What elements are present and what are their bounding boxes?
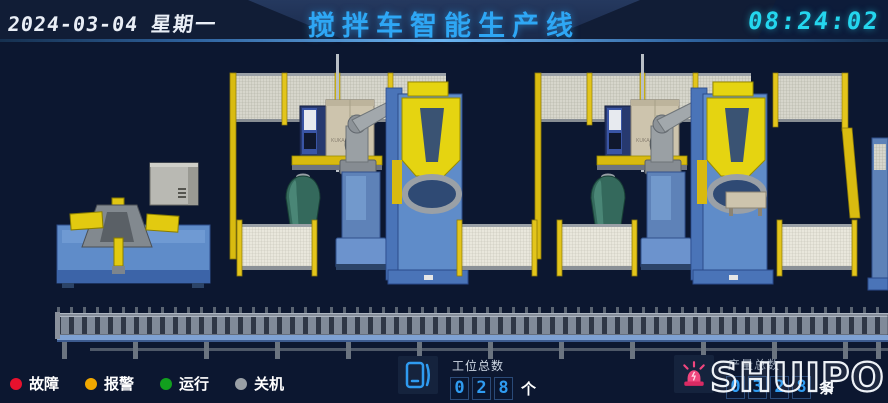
- roller-conveyor: [55, 307, 888, 359]
- safety-fence-front-4: [777, 220, 857, 276]
- clock-display: 08:24:02: [747, 7, 882, 35]
- alarm-siren-icon: [680, 360, 708, 388]
- station-counter: 工位总数 0 2 8 个: [398, 356, 536, 400]
- status-legend: 故障 报警 运行 关机: [10, 373, 284, 394]
- tablet-device-icon: [404, 360, 432, 390]
- safety-fence-front-2: [457, 220, 537, 276]
- production-line-dashboard: 2024-03-04 星期一 搅拌车智能生产线 08:24:02: [0, 0, 888, 403]
- left-fixture-station: [57, 198, 210, 288]
- safety-fence-front-3: [557, 220, 637, 276]
- legend-fault-label: 故障: [29, 373, 59, 394]
- off-status-dot: [235, 378, 247, 390]
- legend-off: 关机: [235, 373, 284, 394]
- legend-off-label: 关机: [254, 373, 284, 394]
- header-bar: 2024-03-04 星期一 搅拌车智能生产线 08:24:02: [0, 0, 888, 42]
- fault-status-dot: [10, 378, 22, 390]
- legend-alarm-label: 报警: [104, 373, 134, 394]
- legend-running-label: 运行: [179, 373, 209, 394]
- siren-icon-panel: [674, 355, 714, 393]
- alarm-status-dot: [85, 378, 97, 390]
- legend-running: 运行: [160, 373, 209, 394]
- station-counter-label: 工位总数: [452, 357, 536, 374]
- running-status-dot: [160, 378, 172, 390]
- production-line-3d-scene: KUKA: [0, 42, 888, 360]
- station-digit: 2: [472, 377, 491, 400]
- legend-alarm: 报警: [85, 373, 134, 394]
- station-digit: 8: [494, 377, 513, 400]
- safety-fence-front-1: [237, 220, 317, 276]
- legend-fault: 故障: [10, 373, 59, 394]
- station-digit: 0: [450, 377, 469, 400]
- shuipo-logo: SHUIPO: [710, 356, 885, 401]
- station-counter-unit: 个: [521, 379, 536, 400]
- electrical-cabinet: [150, 163, 198, 205]
- station-icon-panel: [398, 356, 438, 394]
